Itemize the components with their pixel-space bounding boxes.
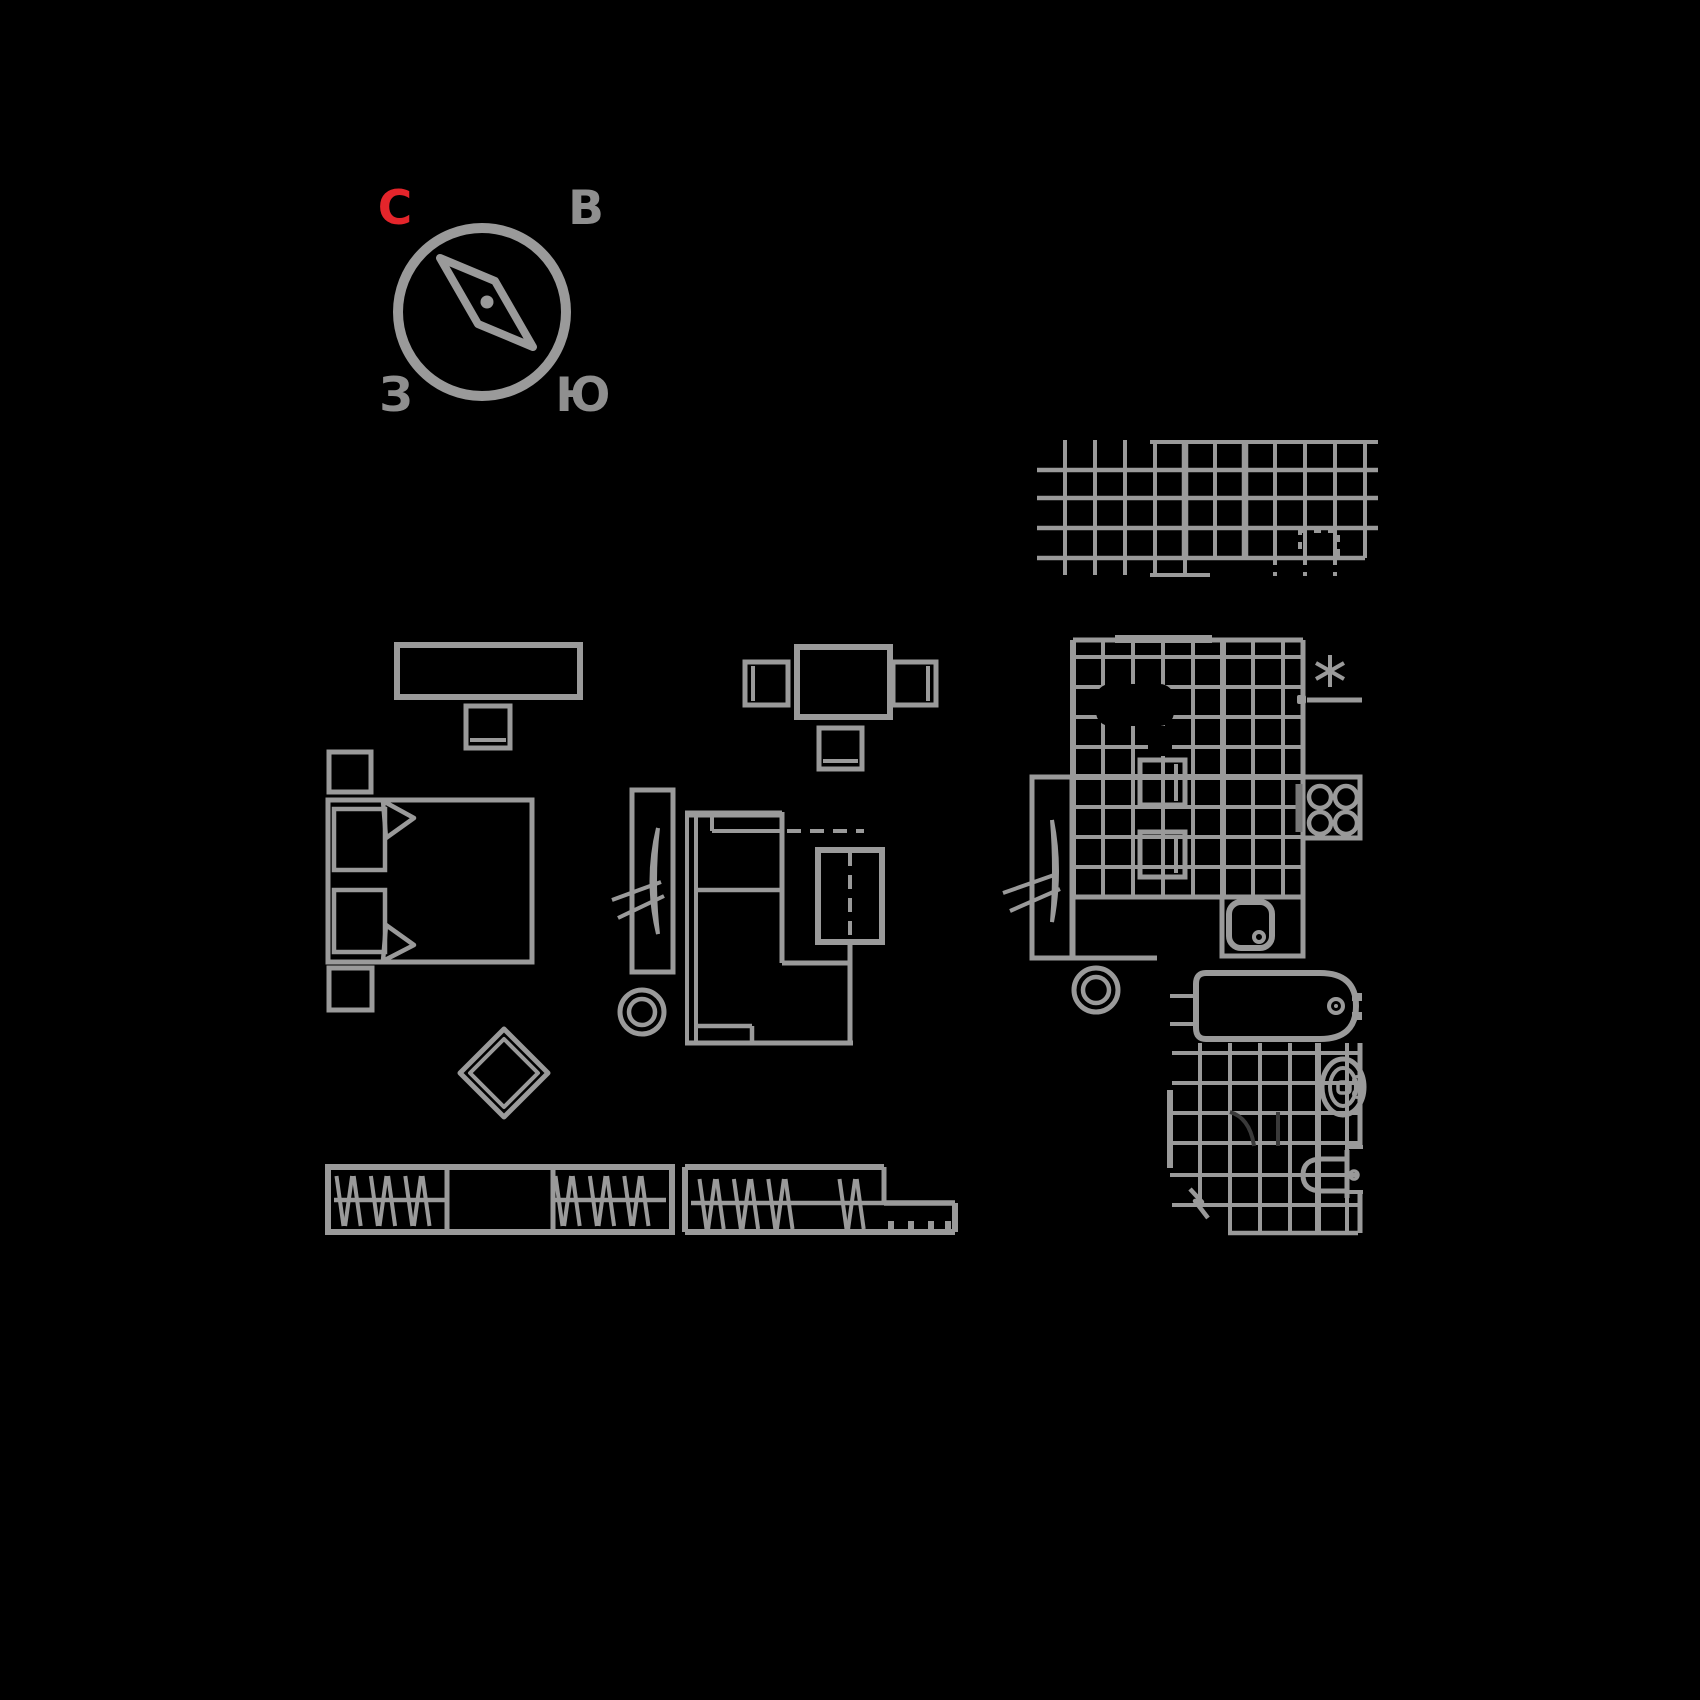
diamond-rug [460, 1029, 548, 1117]
toilet [1322, 1059, 1364, 1115]
faucet-tick [1352, 993, 1362, 1001]
dresser [397, 645, 580, 697]
blanket-fold-bottom [383, 925, 414, 961]
door-hinge [1297, 695, 1362, 704]
compass-rose: С В З Ю [378, 181, 611, 423]
wardrobe-with-mirror [612, 790, 673, 972]
plumbing-ticks [1170, 996, 1197, 1024]
corner-sofa [685, 812, 864, 1043]
compass-label-north: С [378, 181, 413, 236]
kitchen-sink-unit [1222, 897, 1303, 956]
compass-center-dot [481, 296, 494, 309]
stove-4-burners [1299, 777, 1360, 838]
tall-cabinet-with-mirror [1003, 777, 1072, 958]
compass-label-west: З [379, 368, 412, 423]
floor-circle-living [620, 990, 664, 1034]
hanging-clothes [556, 1176, 649, 1226]
faucet-tick [1352, 1012, 1362, 1020]
closet-right [685, 1167, 955, 1232]
bedroom-group [328, 645, 580, 1117]
blanket-fold-top [383, 801, 414, 838]
pillow-top [334, 809, 385, 870]
bathroom-group [1170, 973, 1364, 1233]
star-mark-icon [1316, 655, 1344, 687]
mirror-icon [652, 828, 659, 934]
floor-plan-drawing: С В З Ю [0, 0, 1700, 1700]
hanging-clothes [337, 1176, 430, 1226]
nightstand-top [329, 752, 371, 792]
living-room-group [612, 647, 936, 1043]
mirror-icon [1052, 820, 1057, 922]
hidden-door-arc [1230, 1112, 1278, 1146]
kitchen-floor-tiles [1073, 640, 1303, 897]
floor-plan-canvas: С В З Ю [0, 0, 1700, 1700]
hanging-clothes [840, 1179, 864, 1229]
chair-bottom [819, 728, 862, 769]
chair-left [745, 662, 788, 705]
dining-table [797, 647, 890, 717]
dining-set [745, 647, 936, 769]
nightstand-bottom [329, 968, 372, 1010]
compass-label-south: Ю [555, 368, 610, 423]
kitchen-group [1003, 639, 1362, 1012]
double-bed [328, 800, 532, 962]
tv [466, 706, 510, 748]
pillow-bottom [334, 890, 385, 952]
bathtub [1196, 973, 1362, 1039]
hanging-clothes [700, 1179, 793, 1229]
drain-icon [1254, 932, 1264, 942]
compass-label-east: В [568, 181, 604, 236]
closet-left [328, 1167, 672, 1232]
compass-ring [398, 228, 566, 396]
chair-right [893, 662, 936, 705]
floor-circle-kitchen [1074, 968, 1118, 1012]
wall-tiles-grid [1037, 440, 1378, 575]
